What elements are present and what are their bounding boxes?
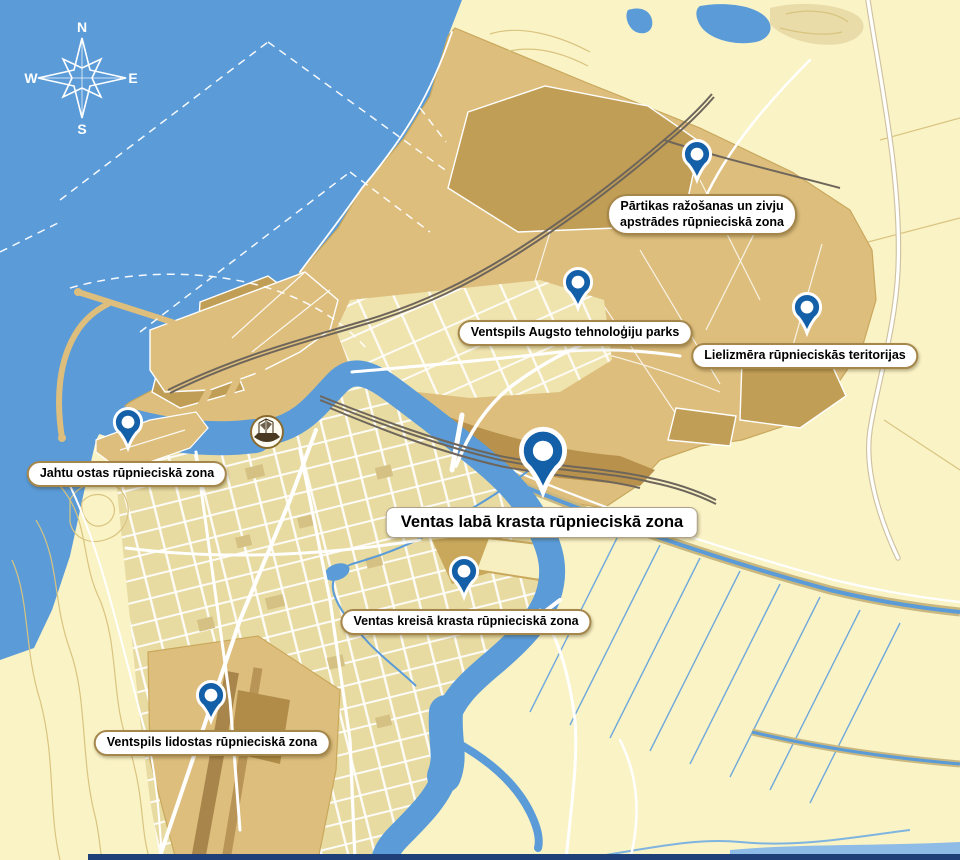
zone-label-line: Pārtikas ražošanas un zivju <box>620 199 784 215</box>
zone-label-line: Ventspils Augsto tehnoloģiju parks <box>471 325 680 341</box>
zone-label-jahtu-ostas: Jahtu ostas rūpnieciskā zona <box>27 461 227 487</box>
zone-label-line: Jahtu ostas rūpnieciskā zona <box>40 466 214 482</box>
zone-label-line: apstrādes rūpnieciskā zona <box>620 215 784 231</box>
zone-label-ventas-laba-krasta: Ventas labā krasta rūpnieciskā zona <box>386 507 698 538</box>
zone-label-partikas: Pārtikas ražošanas un zivjuapstrādes rūp… <box>607 194 797 235</box>
zone-label-ventspils-lidostas: Ventspils lidostas rūpnieciskā zona <box>94 730 331 756</box>
zone-label-line: Ventspils lidostas rūpnieciskā zona <box>107 735 318 751</box>
zone-label-line: Ventas kreisā krasta rūpnieciskā zona <box>353 614 578 630</box>
zone-labels-layer: Pārtikas ražošanas un zivjuapstrādes rūp… <box>0 0 960 860</box>
zone-label-augsto-tehnologiju-parks: Ventspils Augsto tehnoloģiju parks <box>458 320 693 346</box>
zone-label-line: Ventas labā krasta rūpnieciskā zona <box>401 512 683 533</box>
zone-label-line: Lielizmēra rūpnieciskās teritorijas <box>704 348 905 364</box>
zone-label-ventas-kreisa-krasta: Ventas kreisā krasta rūpnieciskā zona <box>340 609 591 635</box>
map-canvas: N E S W Pārtikas ražošanas un zivjuapstr… <box>0 0 960 860</box>
zone-label-lielizmera: Lielizmēra rūpnieciskās teritorijas <box>691 343 918 369</box>
